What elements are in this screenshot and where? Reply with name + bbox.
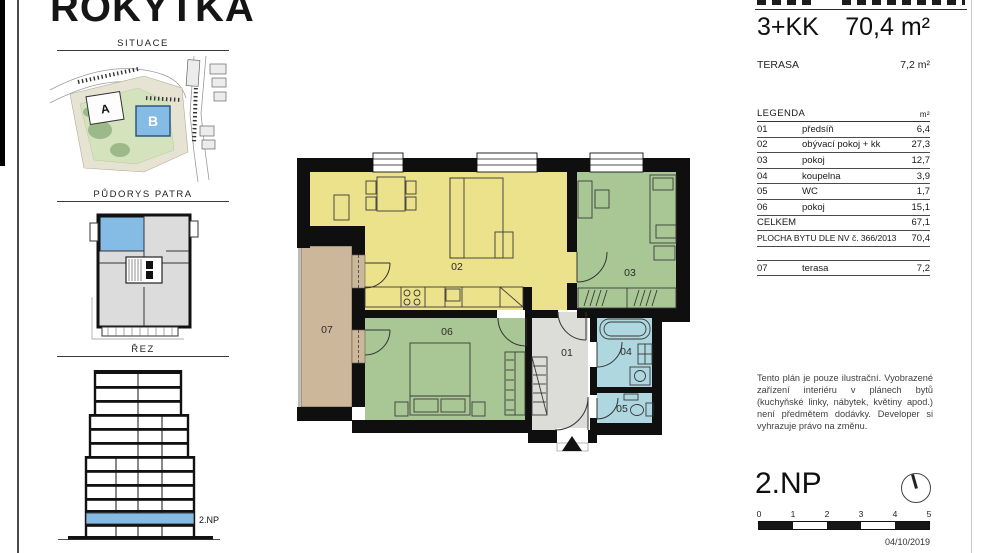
label-room-07: 07 — [321, 324, 333, 336]
room-living-door-nook — [567, 252, 577, 283]
section-thumbnail: 2.NP — [58, 360, 220, 550]
legend-gap — [757, 247, 930, 260]
legend-statute-row: PLOCHA BYTU DLE NV č. 366/2013 70,4 — [757, 231, 930, 247]
main-floorplan: 02 03 07 06 01 04 05 — [290, 145, 700, 455]
legend-terrace-name: terasa — [802, 263, 917, 274]
cutoff-header-left — [757, 0, 817, 5]
disclaimer-text: Tento plán je pouze ilustrační. Vyobraze… — [757, 373, 933, 433]
scale-tick-0: 0 — [754, 509, 764, 519]
legend-row: 05 WC 1,7 — [757, 184, 930, 200]
legend-row: 06 pokoj 15,1 — [757, 200, 930, 216]
scale-tick-4: 4 — [890, 509, 900, 519]
label-room-03: 03 — [624, 267, 636, 279]
terrace-area: 7,2 m² — [900, 59, 930, 71]
legend-total-row: CELKEM 67,1 — [757, 216, 930, 232]
legend-statute-label: PLOCHA BYTU DLE NV č. 366/2013 — [757, 233, 912, 243]
rez-rule — [57, 356, 229, 357]
header-rule — [755, 9, 967, 10]
building-b-label: B — [148, 113, 158, 129]
legend-title: LEGENDA — [757, 108, 805, 119]
legend-rows: 01 předsíň 6,4 02 obývací pokoj + kk 27,… — [757, 122, 930, 216]
pudorys-rule — [57, 201, 229, 202]
legend-row: 03 pokoj 12,7 — [757, 153, 930, 169]
floor-overview-thumbnail — [88, 211, 200, 343]
floorplan-sheet: { "brand": { "logo": "ROKYTKA" }, "sideb… — [0, 0, 989, 553]
label-room-01: 01 — [561, 347, 573, 359]
label-room-06: 06 — [441, 326, 453, 338]
section-highlight-floor — [86, 513, 194, 524]
scale-bar: 0 1 2 3 4 5 — [758, 509, 930, 533]
scale-tick-5: 5 — [924, 509, 934, 519]
brand-logo: ROKYTKA — [50, 0, 255, 31]
legend-terrace-num: 07 — [757, 263, 802, 274]
legend-total-value: 67,1 — [912, 217, 931, 228]
legend-row: 02 obývací pokoj + kk 27,3 — [757, 138, 930, 154]
plan-date: 04/10/2019 — [855, 537, 930, 547]
section-floor-label: 2.NP — [199, 515, 219, 525]
legend-row: 04 koupelna 3,9 — [757, 169, 930, 185]
terrace-header: TERASA 7,2 m² — [757, 59, 930, 71]
highlighted-unit — [100, 217, 144, 251]
legend-total-label: CELKEM — [757, 217, 912, 228]
legend-statute-value: 70,4 — [912, 233, 931, 244]
situace-label: SITUACE — [57, 38, 229, 49]
legend-unit-header: m² — [920, 110, 930, 119]
situace-rule — [57, 50, 229, 51]
scale-tick-1: 1 — [788, 509, 798, 519]
rez-label: ŘEZ — [57, 344, 229, 355]
scale-tick-2: 2 — [822, 509, 832, 519]
terrace-label: TERASA — [757, 59, 799, 71]
legend-table: LEGENDA m² 01 předsíň 6,4 02 obývací pok… — [757, 108, 930, 276]
north-indicator — [896, 469, 936, 509]
unit-layout: 3+KK — [757, 13, 819, 42]
label-room-05: 05 — [616, 403, 628, 415]
legend-row: 01 předsíň 6,4 — [757, 122, 930, 138]
site-plan-thumbnail: A B — [48, 56, 238, 186]
page-right-border — [971, 0, 972, 553]
north-needle-icon — [913, 475, 917, 489]
cutoff-header-right — [842, 0, 965, 5]
pudorys-label: PŮDORYS PATRA — [57, 189, 229, 200]
legend-terrace-value: 7,2 — [917, 263, 930, 274]
unit-header: 3+KK 70,4 m² — [757, 13, 930, 42]
page-edge-bar — [0, 0, 5, 166]
label-room-04: 04 — [620, 346, 632, 358]
scale-bar-segments — [758, 521, 930, 530]
label-room-02: 02 — [451, 261, 463, 273]
floor-title: 2.NP — [755, 467, 822, 501]
unit-area: 70,4 m² — [845, 13, 930, 42]
room-hall — [532, 312, 588, 430]
scale-tick-3: 3 — [856, 509, 866, 519]
page-left-border — [17, 0, 19, 553]
legend-terrace-row: 07 terasa 7,2 — [757, 260, 930, 277]
legend-header: LEGENDA m² — [757, 108, 930, 122]
